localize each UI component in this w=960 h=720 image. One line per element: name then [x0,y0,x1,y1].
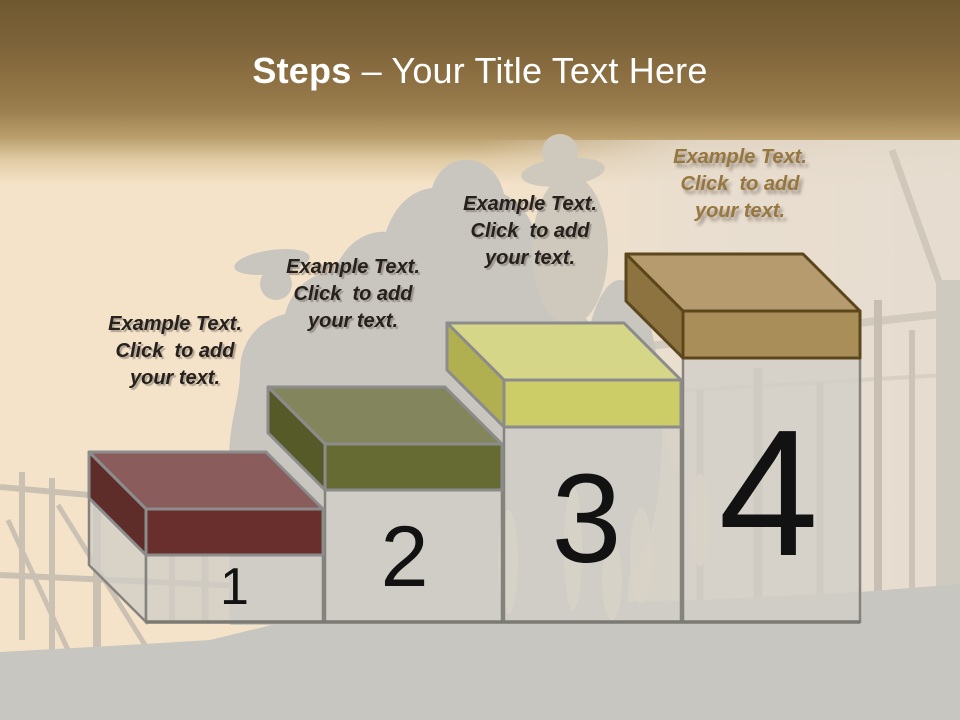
step-4-front-face [683,311,860,358]
step-1-label-placeholder[interactable]: Example Text. Click to add your text. [80,311,270,392]
step-3-number: 3 [498,456,675,582]
step-3-slab [447,323,681,427]
step-4-label-placeholder[interactable]: Example Text. Click to add your text. [645,144,835,225]
slide-title-rest: – Your Title Text Here [351,50,707,91]
step-1-front-face [146,509,323,555]
step-4-slab [626,254,860,358]
step-2-number: 2 [316,514,493,600]
step-3-label-placeholder[interactable]: Example Text. Click to add your text. [435,191,625,272]
step-1-number: 1 [146,561,323,613]
step-2-slab [268,387,502,490]
slide: Steps – Your Title Text Here Example Tex… [0,0,960,720]
slide-title-keyword: Steps [252,50,351,91]
step-3-front-face [504,380,681,427]
slide-title: Steps – Your Title Text Here [0,50,960,92]
step-4-number: 4 [680,404,857,584]
step-2-front-face [325,444,502,490]
step-2-label-placeholder[interactable]: Example Text. Click to add your text. [258,254,448,335]
